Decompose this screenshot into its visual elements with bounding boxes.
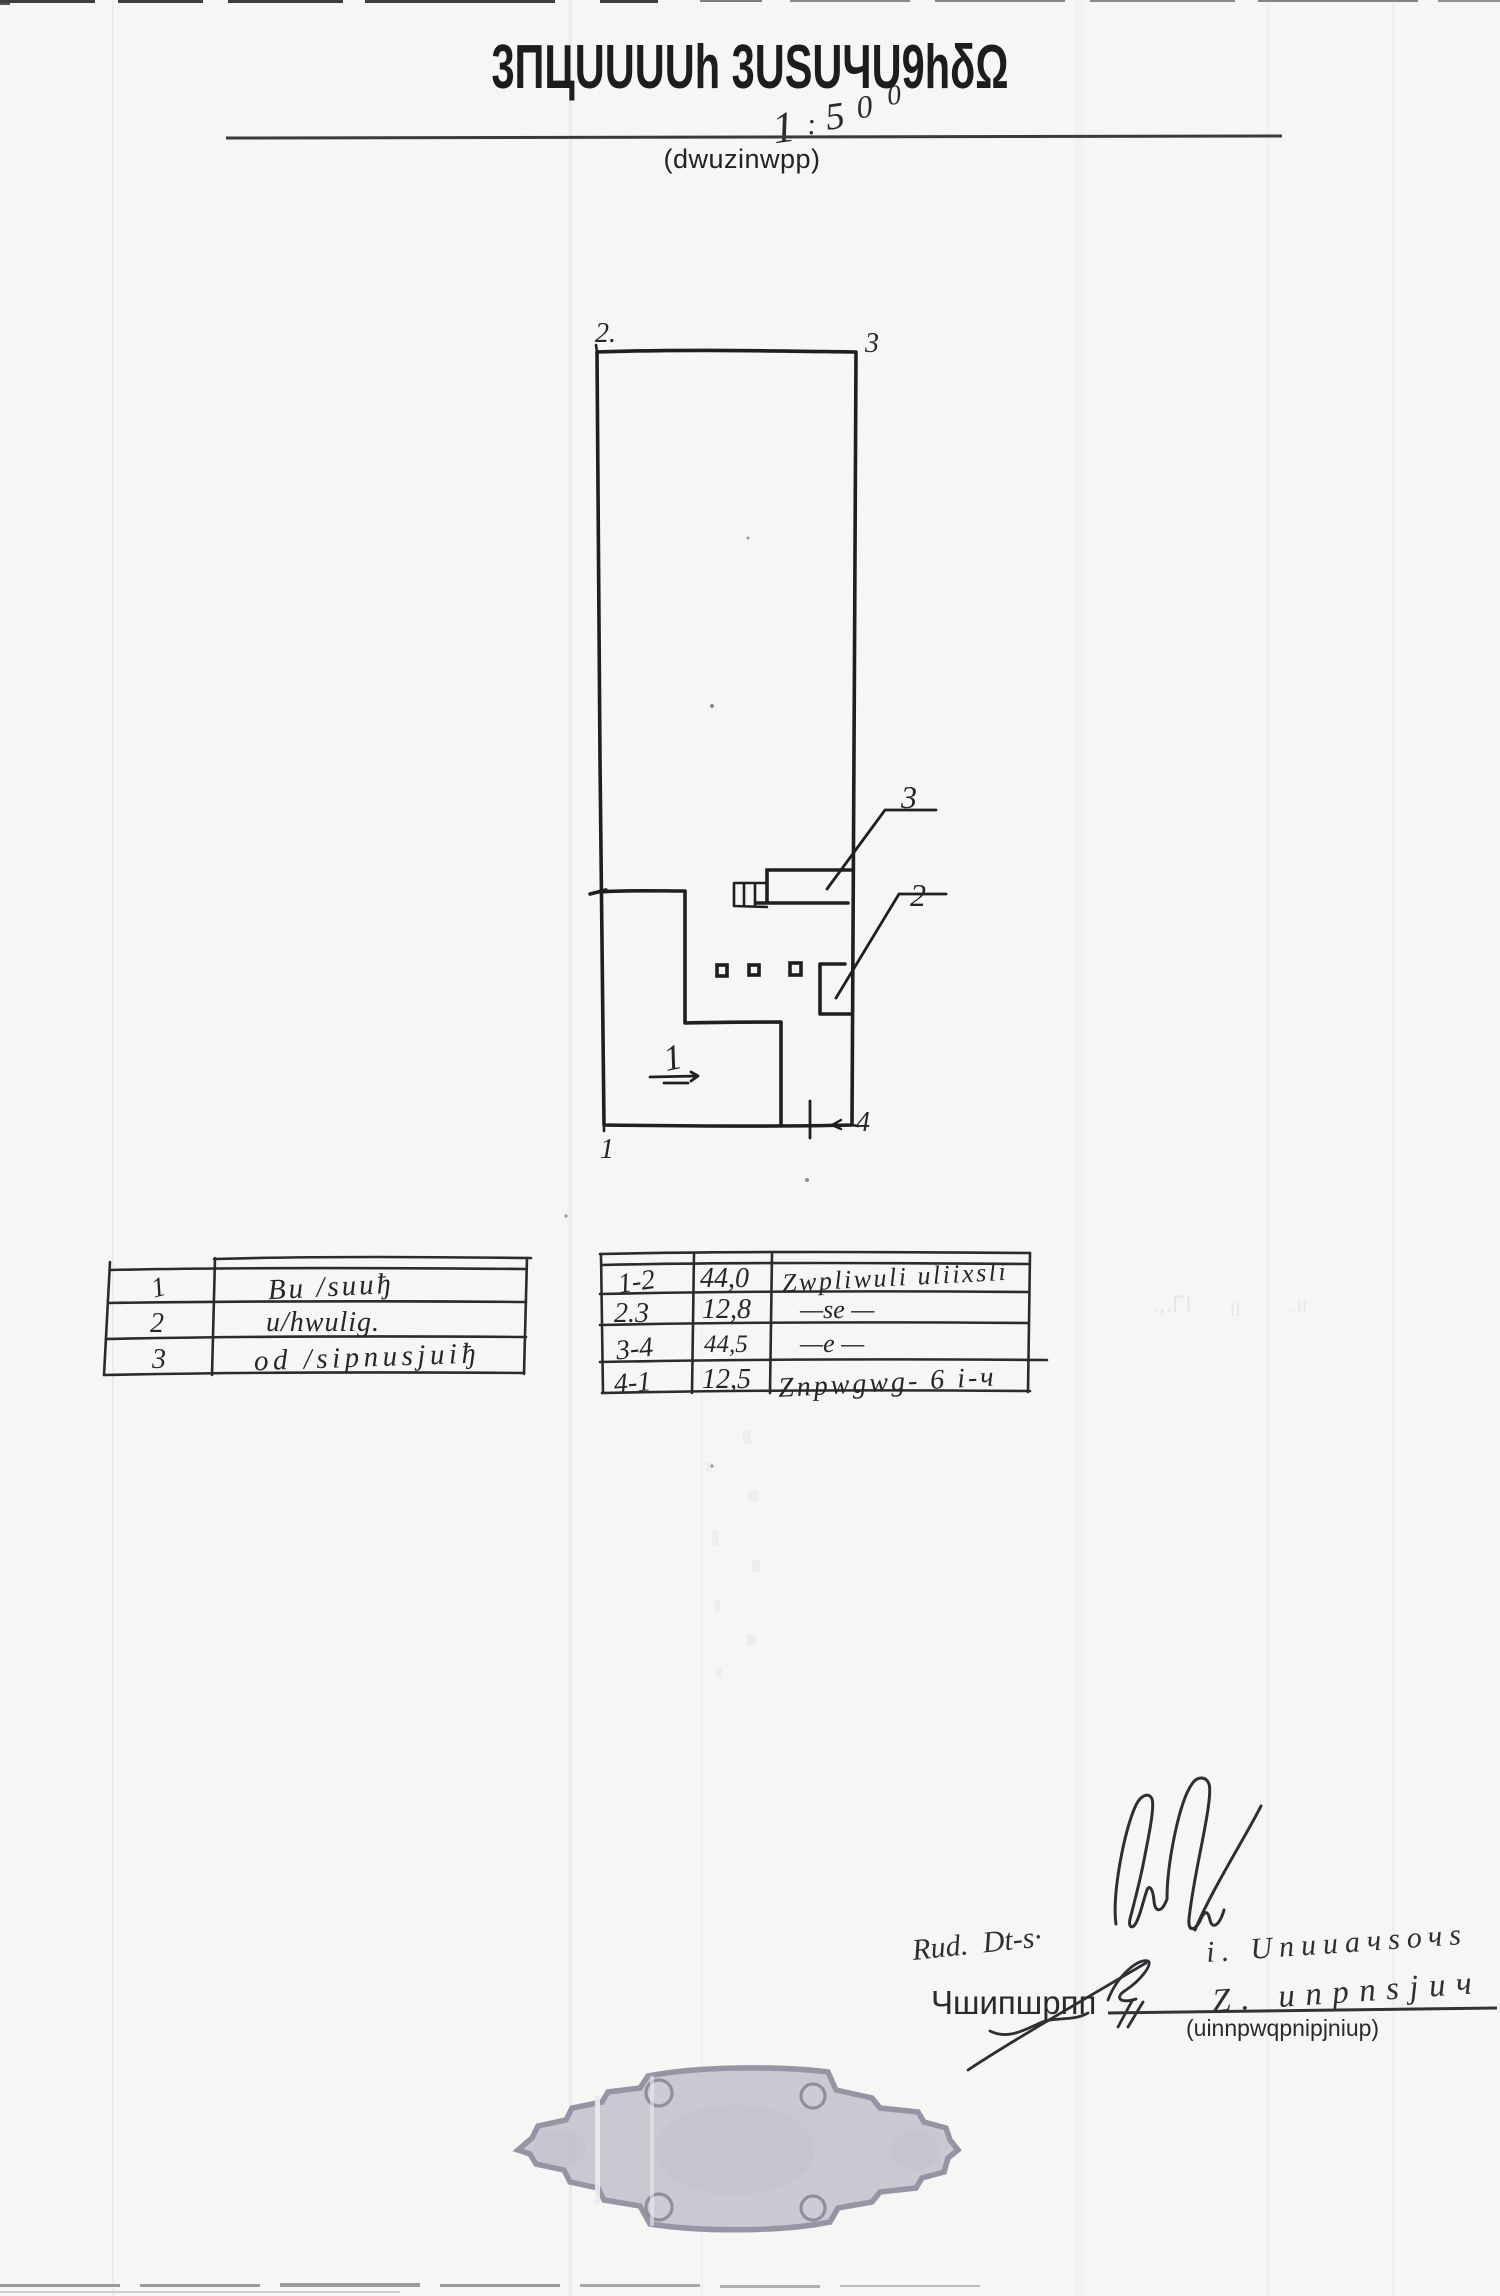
svg-text:2: 2 — [150, 1308, 164, 1339]
svg-text:Чшипшрпп: Чшипшрпп — [931, 1984, 1096, 2021]
svg-text:—ѕе —: —ѕе — — [799, 1295, 875, 1324]
svg-text:3ПЦUUUUh 3USUЧU9hδΩ: 3ПЦUUUUh 3USUЧU9hδΩ — [491, 33, 1008, 102]
svg-text:2: 2 — [910, 877, 926, 913]
svg-text:3: 3 — [900, 779, 917, 815]
svg-text:Rud. Dt-s·: Rud. Dt-s· — [910, 1921, 1044, 1968]
svg-text:.ιι: .ιι — [1290, 1291, 1307, 1318]
svg-text:(dwuzinwpp): (dwuzinwpp) — [663, 144, 820, 174]
svg-text:і. Unuиaчѕочѕ: і. Unuиaчѕочѕ — [1205, 1918, 1469, 1969]
svg-text:12,5: 12,5 — [702, 1364, 751, 1395]
svg-text:1: 1 — [600, 1134, 614, 1165]
svg-text:1-2: 1-2 — [616, 1264, 657, 1300]
svg-text:3: 3 — [151, 1344, 166, 1375]
svg-text:Znpwgwg- 6 і-ч: Znpwgwg- 6 і-ч — [777, 1361, 997, 1403]
svg-text:u/hwulig.: u/hwulig. — [266, 1307, 380, 1338]
svg-text:3: 3 — [864, 328, 879, 359]
svg-text:44,0: 44,0 — [700, 1263, 749, 1294]
svg-text:1: 1 — [660, 1036, 686, 1079]
svg-text:4-1: 4-1 — [613, 1366, 652, 1400]
svg-text:2.3: 2.3 — [614, 1298, 649, 1329]
svg-text:44,5: 44,5 — [704, 1331, 748, 1358]
svg-text:4: 4 — [856, 1107, 870, 1138]
svg-text:Bu /ѕuuђ: Bu /ѕuuђ — [267, 1268, 394, 1307]
svg-text:1: 1 — [148, 1271, 169, 1304]
svg-text:.,.ΓΙ: .,.ΓΙ — [1152, 1291, 1192, 1318]
svg-text:2.: 2. — [595, 318, 616, 349]
svg-text:—е —: —е — — [799, 1329, 865, 1358]
svg-text:12,8: 12,8 — [702, 1294, 751, 1325]
svg-text:ιι: ιι — [1230, 1295, 1241, 1322]
svg-text:(uinnpwqpnipjniup): (uinnpwqpnipjniup) — [1186, 2015, 1379, 2041]
svg-text:3-4: 3-4 — [613, 1332, 654, 1367]
